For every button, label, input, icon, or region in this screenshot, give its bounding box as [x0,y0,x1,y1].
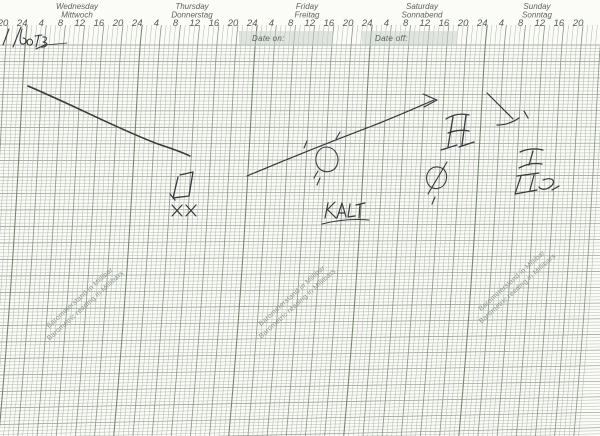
hour-label: 4 [499,18,504,29]
pi-curl-symbol [515,173,559,194]
hour-label: 12 [304,18,315,29]
hour-label: 8 [173,18,179,29]
hour-label: 4 [39,18,44,29]
hour-label: 24 [246,18,258,29]
hour-label: 4 [384,18,389,29]
hour-label: 8 [518,18,524,29]
hour-label: 20 [112,18,124,29]
hour-label: 12 [189,18,200,29]
rising-trace-arrowhead [423,94,437,107]
hour-label: 20 [0,18,9,29]
hour-label: 16 [209,18,220,29]
hour-label: 20 [342,18,354,29]
hour-label: 12 [74,18,85,29]
hour-label: 24 [16,18,28,29]
hour-label: 4 [269,18,274,29]
hour-label: 12 [419,18,430,29]
xx-marks [172,205,196,216]
hour-label: 20 [572,18,584,29]
hour-label: 8 [58,18,64,29]
hour-label: 16 [439,18,450,29]
hour-label: 16 [554,18,565,29]
hour-label: 8 [288,18,294,29]
hour-label: 24 [476,18,488,29]
kalt-word [325,202,365,218]
hour-label: 12 [535,18,546,29]
chart-canvas: WednesdayMittwochThursdayDonnerstagFrida… [0,0,600,436]
barograph-chart-paper: WednesdayMittwochThursdayDonnerstagFrida… [0,0,600,436]
hour-label: 24 [131,18,143,29]
hour-label: 24 [361,18,373,29]
hour-label: 8 [403,18,409,29]
hour-label: 20 [227,18,239,29]
hour-label: 20 [457,18,469,29]
hour-label: 16 [324,18,335,29]
hour-label: 4 [154,18,159,29]
hour-label: 16 [94,18,105,29]
